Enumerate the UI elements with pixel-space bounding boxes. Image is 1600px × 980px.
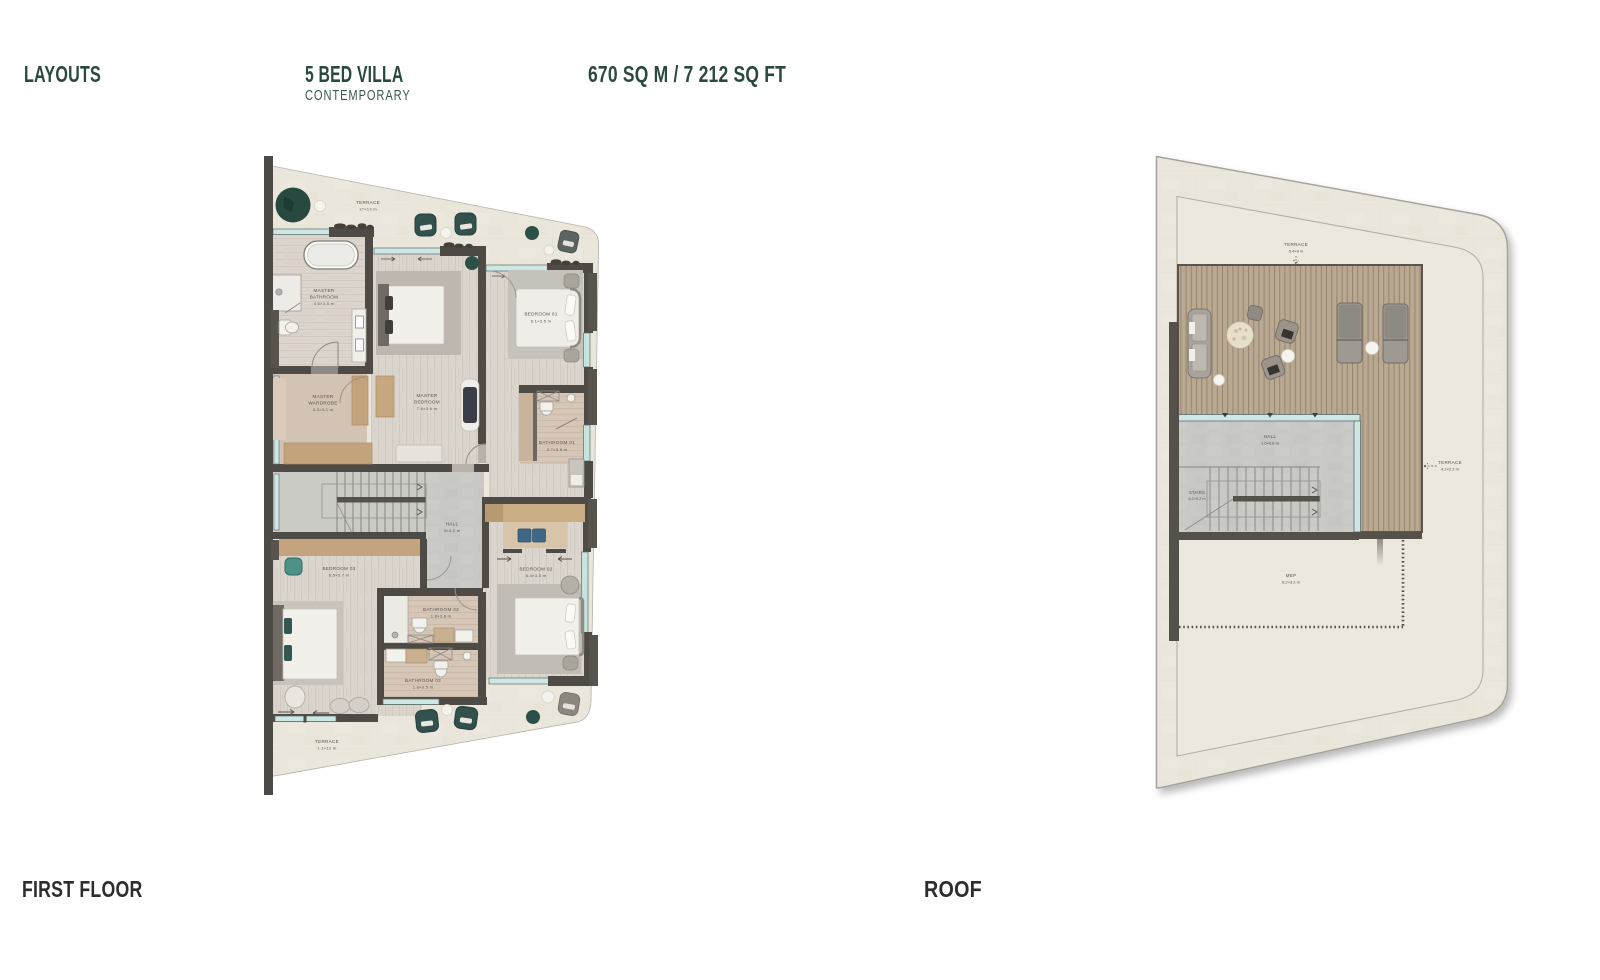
svg-text:BEDROOM 02: BEDROOM 02: [519, 567, 552, 572]
svg-text:1.8×3.8 m: 1.8×3.8 m: [431, 614, 452, 619]
svg-text:6.2×5.2 m: 6.2×5.2 m: [1189, 497, 1206, 501]
svg-text:17×13 m: 17×13 m: [359, 207, 377, 212]
svg-text:2.7×3.8 m: 2.7×3.8 m: [547, 447, 568, 452]
svg-text:3×4.2 m: 3×4.2 m: [444, 528, 461, 533]
svg-text:BATHROOM 03: BATHROOM 03: [405, 678, 441, 683]
svg-text:3.2×3.1 m: 3.2×3.1 m: [313, 407, 334, 412]
svg-text:4.2×2.2 m: 4.2×2.2 m: [1441, 467, 1460, 472]
svg-text:6.5×3.7 m: 6.5×3.7 m: [329, 573, 350, 578]
svg-text:STAIRS: STAIRS: [1189, 490, 1205, 495]
svg-text:BATHROOM 02: BATHROOM 02: [423, 607, 459, 612]
svg-text:8.2×3.2 m: 8.2×3.2 m: [1282, 580, 1301, 585]
svg-text:WARDROBE: WARDROBE: [308, 401, 337, 406]
svg-text:1.1×12 m: 1.1×12 m: [317, 746, 337, 751]
svg-text:MASTER: MASTER: [314, 288, 335, 293]
svg-text:BEDROOM 01: BEDROOM 01: [524, 312, 557, 317]
svg-text:TERRACE: TERRACE: [1284, 242, 1308, 247]
svg-text:5.4×9 m: 5.4×9 m: [1289, 249, 1304, 254]
svg-text:6.1×3.5 m: 6.1×3.5 m: [531, 319, 552, 324]
svg-text:4.6×3.5 m: 4.6×3.5 m: [314, 301, 335, 306]
svg-text:HALL: HALL: [446, 522, 459, 527]
svg-text:BEDROOM 03: BEDROOM 03: [322, 566, 355, 571]
svg-text:TERRACE: TERRACE: [356, 200, 380, 205]
svg-text:HALL: HALL: [1264, 434, 1277, 439]
svg-text:MASTER: MASTER: [417, 393, 438, 398]
svg-text:1.6×6.8 m: 1.6×6.8 m: [1261, 441, 1280, 446]
svg-text:BEDROOM: BEDROOM: [414, 400, 440, 405]
svg-text:MASTER: MASTER: [313, 394, 334, 399]
svg-text:MEP: MEP: [1286, 573, 1297, 578]
svg-text:BATHROOM 01: BATHROOM 01: [539, 440, 575, 445]
svg-text:6.4×3.5 m: 6.4×3.5 m: [526, 573, 547, 578]
svg-text:1.8×3.5 m: 1.8×3.5 m: [413, 685, 434, 690]
svg-text:7.6×3.6 m: 7.6×3.6 m: [417, 406, 438, 411]
svg-text:BATHROOM: BATHROOM: [310, 295, 339, 300]
svg-text:TERRACE: TERRACE: [1438, 460, 1462, 465]
svg-text:TERRACE: TERRACE: [315, 739, 339, 744]
